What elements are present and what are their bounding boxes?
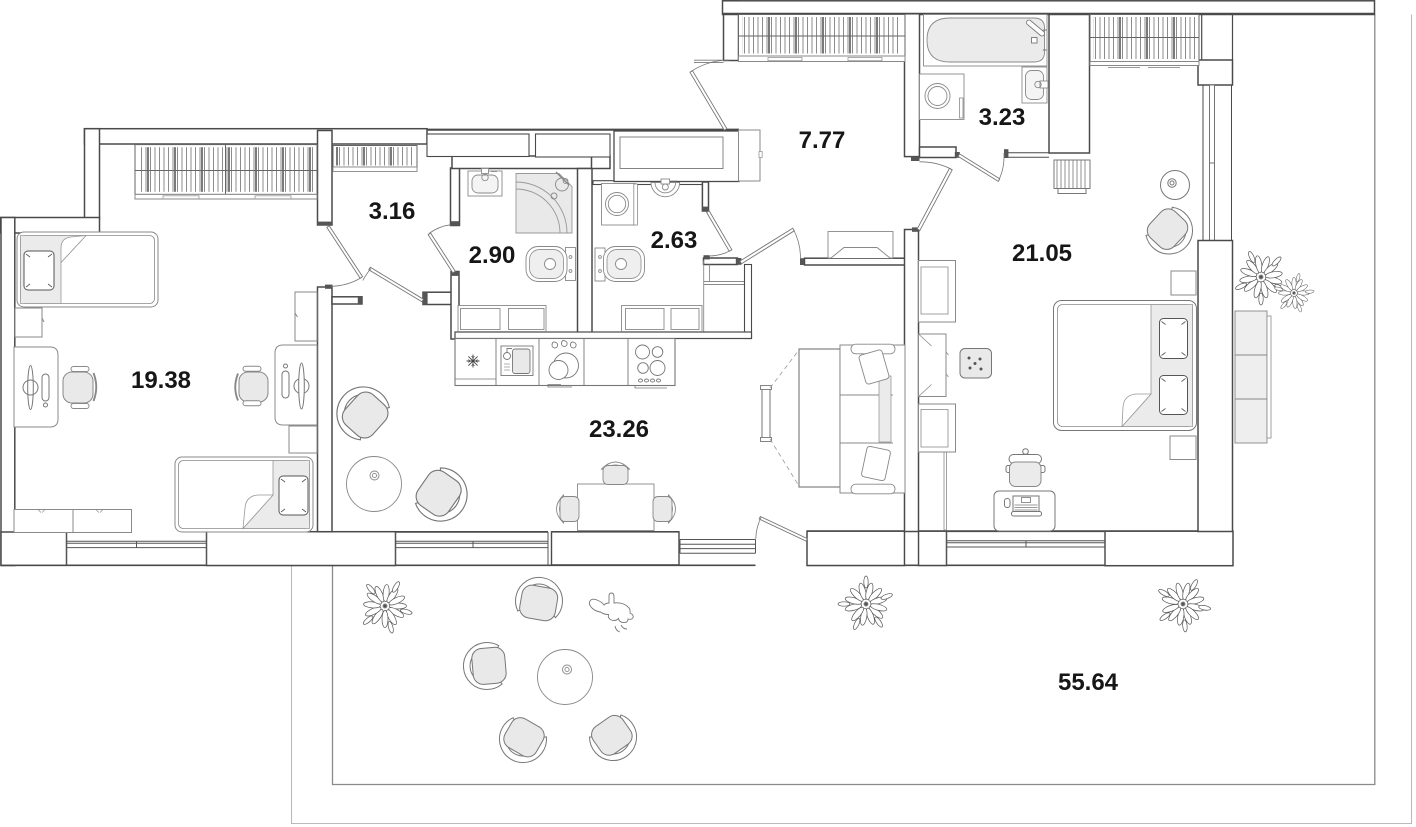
svg-text:3.16: 3.16 (369, 198, 416, 225)
svg-text:23.26: 23.26 (589, 416, 649, 443)
svg-text:21.05: 21.05 (1012, 240, 1072, 267)
svg-text:7.77: 7.77 (799, 127, 846, 154)
svg-text:3.23: 3.23 (979, 104, 1026, 131)
svg-text:2.90: 2.90 (469, 242, 516, 269)
svg-text:19.38: 19.38 (131, 367, 191, 394)
svg-text:2.63: 2.63 (651, 227, 698, 254)
svg-text:55.64: 55.64 (1058, 669, 1119, 696)
